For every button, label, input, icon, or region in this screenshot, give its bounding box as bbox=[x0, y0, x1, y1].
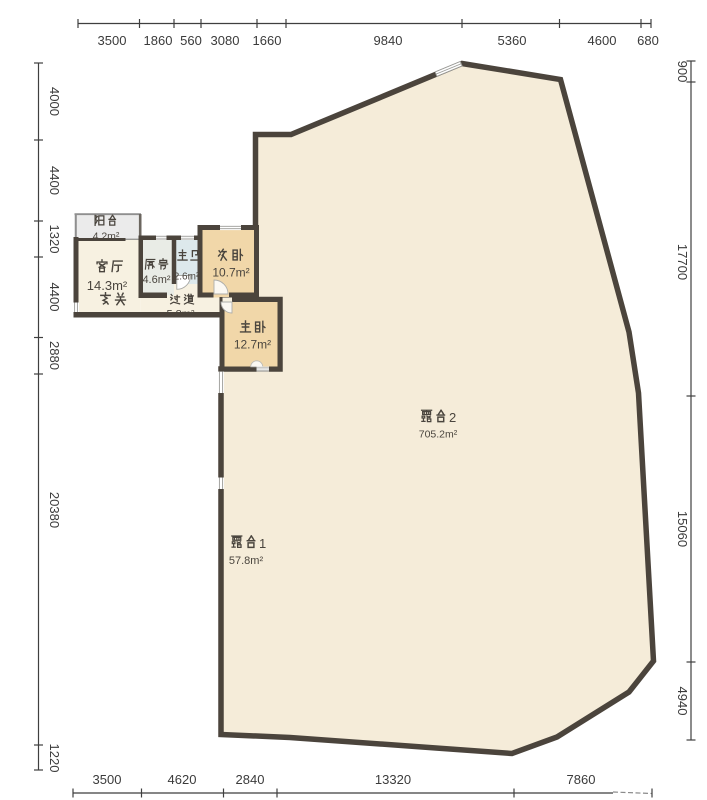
svg-text:57.8m²: 57.8m² bbox=[229, 555, 264, 567]
svg-text:12.7m²: 12.7m² bbox=[234, 338, 271, 352]
svg-text:4.2m²: 4.2m² bbox=[93, 231, 120, 243]
svg-text:4940: 4940 bbox=[675, 687, 690, 716]
svg-text:680: 680 bbox=[637, 33, 659, 48]
svg-text:1320: 1320 bbox=[47, 225, 62, 254]
svg-text:15060: 15060 bbox=[675, 511, 690, 547]
svg-text:4620: 4620 bbox=[168, 772, 197, 787]
svg-text:5360: 5360 bbox=[498, 33, 527, 48]
svg-text:4.6m²: 4.6m² bbox=[142, 274, 170, 286]
svg-text:20380: 20380 bbox=[47, 492, 62, 528]
svg-text:2: 2 bbox=[449, 410, 456, 425]
svg-text:9840: 9840 bbox=[374, 33, 403, 48]
svg-text:4000: 4000 bbox=[47, 87, 62, 116]
svg-text:4400: 4400 bbox=[47, 166, 62, 195]
svg-text:3080: 3080 bbox=[211, 33, 240, 48]
svg-text:17700: 17700 bbox=[675, 244, 690, 280]
svg-text:14.3m²: 14.3m² bbox=[87, 278, 128, 293]
svg-text:705.2m²: 705.2m² bbox=[419, 429, 458, 441]
svg-text:10.7m²: 10.7m² bbox=[212, 266, 249, 280]
svg-text:5.8m²: 5.8m² bbox=[166, 309, 194, 321]
svg-text:560: 560 bbox=[180, 33, 202, 48]
svg-text:3500: 3500 bbox=[93, 772, 122, 787]
svg-text:900: 900 bbox=[675, 61, 690, 83]
svg-text:2.6m²: 2.6m² bbox=[174, 272, 200, 283]
svg-text:3500: 3500 bbox=[98, 33, 127, 48]
svg-text:1860: 1860 bbox=[144, 33, 173, 48]
svg-text:2840: 2840 bbox=[236, 772, 265, 787]
svg-text:7860: 7860 bbox=[567, 772, 596, 787]
svg-text:1660: 1660 bbox=[253, 33, 282, 48]
svg-text:4400: 4400 bbox=[47, 283, 62, 312]
svg-text:2880: 2880 bbox=[47, 341, 62, 370]
svg-text:1: 1 bbox=[259, 536, 266, 551]
svg-text:4600: 4600 bbox=[588, 33, 617, 48]
svg-text:13320: 13320 bbox=[375, 772, 411, 787]
svg-text:1220: 1220 bbox=[47, 744, 62, 773]
